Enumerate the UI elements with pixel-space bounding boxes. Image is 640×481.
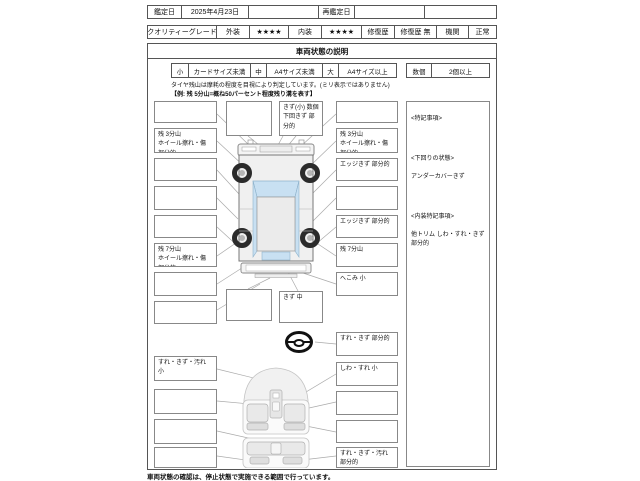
interior-note-box (336, 391, 398, 415)
tire-tread-note-line1: タイヤ残山は摩耗の程度を目視により判定しています。(ミリ表示ではありません) (171, 82, 390, 91)
exterior-note-box (336, 101, 398, 123)
exterior-note-box: エッジきず 部分的 (336, 215, 398, 238)
exterior-note-box (154, 215, 217, 238)
exterior-note-box (154, 301, 217, 324)
repair-history-label: 修復歴 (361, 26, 394, 38)
exterior-note-box (154, 158, 217, 181)
re-appraisal-blank-cell (424, 6, 496, 18)
interior-remarks-value: 他トリム しわ・すれ・きず 部分的 (411, 231, 485, 249)
re-appraisal-date-label: 再鑑定日 (318, 6, 354, 18)
size-medium-label: 中 (250, 64, 266, 77)
exterior-note-box (336, 186, 398, 210)
exterior-note-box: 残 7分山 (336, 243, 398, 267)
special-remarks-panel: <特記事項> <下回りの状態> アンダーカバーきず <内装特記事項> 他トリム … (406, 101, 490, 467)
repair-history-value: 修復歴 無 (394, 26, 436, 38)
exterior-note-box (154, 272, 217, 296)
car-interior-icon (239, 362, 313, 468)
remarks-title: <特記事項> (411, 115, 485, 124)
section-title: 車両状態の説明 (148, 44, 496, 59)
interior-note-box (336, 420, 398, 443)
interior-label: 内装 (288, 26, 321, 38)
engine-label: 機関 (436, 26, 468, 38)
engine-value: 正常 (468, 26, 496, 38)
count-label: 数個 (407, 64, 431, 77)
exterior-note-box (154, 186, 217, 210)
exterior-note-box (154, 101, 217, 123)
exterior-note-box: きず 中 (279, 291, 323, 323)
exterior-stars: ★★★★ (249, 26, 288, 38)
re-appraisal-date-value (354, 6, 424, 18)
appraisal-date-row: 鑑定日 2025年4月23日 再鑑定日 (147, 5, 497, 19)
size-legend: 小 カードサイズ未満 中 A4サイズ未満 大 A4サイズ以上 (171, 63, 397, 78)
exterior-note-box: 残 7分山 ホイール擦れ・傷 部分的 (154, 243, 217, 267)
size-large-desc: A4サイズ以上 (338, 64, 396, 77)
interior-note-box: すれ・きず・汚れ 部分的 (336, 447, 398, 468)
appraisal-date-label: 鑑定日 (148, 6, 181, 18)
size-medium-desc: A4サイズ未満 (266, 64, 322, 77)
exterior-note-box: 残 3分山 ホイール擦れ・傷 部分的 (154, 128, 217, 153)
grade-row: クオリティーグレード 外装 ★★★★ 内装 ★★★★ 修復歴 修復歴 無 機関 … (147, 25, 497, 39)
interior-stars: ★★★★ (321, 26, 361, 38)
tire-tread-note: タイヤ残山は摩耗の程度を目視により判定しています。(ミリ表示ではありません) 【… (171, 82, 390, 99)
interior-note-box: しわ・すれ 小 (336, 362, 398, 386)
underbody-title: <下回りの状態> (411, 155, 485, 164)
interior-note-box (154, 447, 217, 468)
exterior-note-box: きず(小) 数個 下回きず 部分的 (279, 101, 323, 136)
exterior-note-box: 残 3分山 ホイール擦れ・傷 部分的 (336, 128, 398, 153)
interior-note-box: すれ・きず・汚れ 小 (154, 356, 217, 381)
quality-grade-label: クオリティーグレード (148, 26, 216, 38)
interior-note-box (154, 389, 217, 414)
size-small-desc: カードサイズ未満 (188, 64, 250, 77)
exterior-note-box (226, 289, 272, 321)
underbody-value: アンダーカバーきず (411, 173, 485, 182)
appraisal-date-value: 2025年4月23日 (181, 6, 248, 18)
steering-wheel-icon (284, 330, 314, 354)
size-large-label: 大 (322, 64, 338, 77)
car-top-view-icon (229, 139, 323, 278)
exterior-note-box: エッジきず 部分的 (336, 158, 398, 181)
size-small-label: 小 (172, 64, 188, 77)
exterior-label: 外装 (216, 26, 249, 38)
interior-remarks-title: <内装特記事項> (411, 213, 485, 222)
exterior-note-box: へこみ 小 (336, 272, 398, 296)
count-legend: 数個 2個以上 (406, 63, 490, 78)
tire-tread-note-line2: 【例: 残 5分山=概ね50パーセント程度残り溝を表す】 (171, 91, 390, 100)
exterior-note-box (226, 101, 272, 136)
count-desc: 2個以上 (431, 64, 489, 77)
vehicle-condition-section: 車両状態の説明 小 カードサイズ未満 中 A4サイズ未満 大 A4サイズ以上 数… (147, 43, 497, 470)
interior-note-box: すれ・きず 部分的 (336, 332, 398, 356)
interior-note-box (154, 419, 217, 444)
appraisal-blank-cell (248, 6, 318, 18)
